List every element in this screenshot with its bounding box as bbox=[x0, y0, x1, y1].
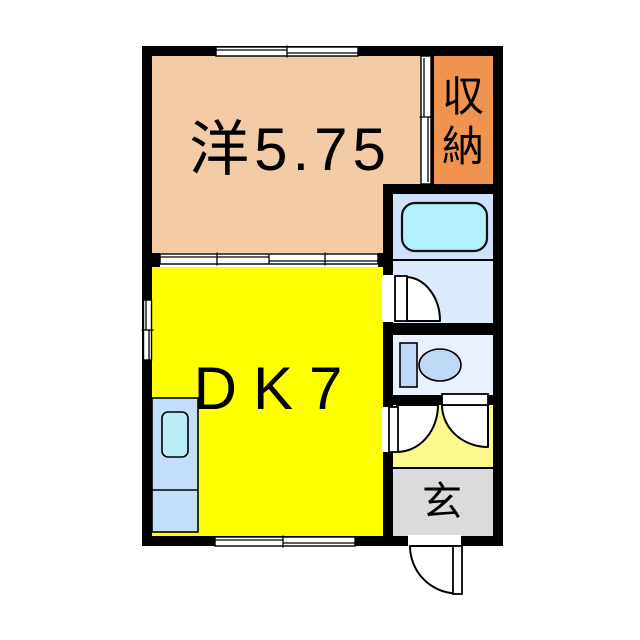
toilet-tank-icon bbox=[400, 343, 417, 387]
bathtub-icon bbox=[402, 203, 487, 251]
wall-stub-right bbox=[378, 253, 393, 267]
wall-washroom-toilet bbox=[383, 323, 493, 335]
floor-plan: 洋5.75 収納 DK7 玄 bbox=[0, 0, 640, 640]
room-western-lower bbox=[152, 184, 383, 253]
wall-stub-left bbox=[152, 253, 160, 267]
wall-storage-bath bbox=[383, 184, 493, 194]
label-storage: 収納 bbox=[440, 72, 486, 172]
entrance-door-swing bbox=[410, 546, 458, 594]
window-top bbox=[216, 46, 358, 58]
label-entrance: 玄 bbox=[415, 481, 469, 523]
sliding-partition-western-dk bbox=[160, 253, 378, 266]
floor-plan-drawing bbox=[0, 0, 640, 640]
entrance-door-leaf bbox=[453, 546, 462, 594]
label-dining-kitchen: DK7 bbox=[176, 356, 376, 422]
label-western-room: 洋5.75 bbox=[158, 116, 422, 184]
window-left bbox=[142, 300, 154, 360]
toilet-door-leaf bbox=[442, 394, 488, 405]
dk-hallway-door-leaf bbox=[389, 407, 398, 452]
window-bottom bbox=[215, 536, 355, 548]
wall-dk-right bbox=[383, 184, 393, 536]
washroom-doorway bbox=[382, 275, 394, 322]
toilet-bowl-icon bbox=[419, 349, 461, 381]
washroom-door-leaf bbox=[395, 276, 407, 321]
